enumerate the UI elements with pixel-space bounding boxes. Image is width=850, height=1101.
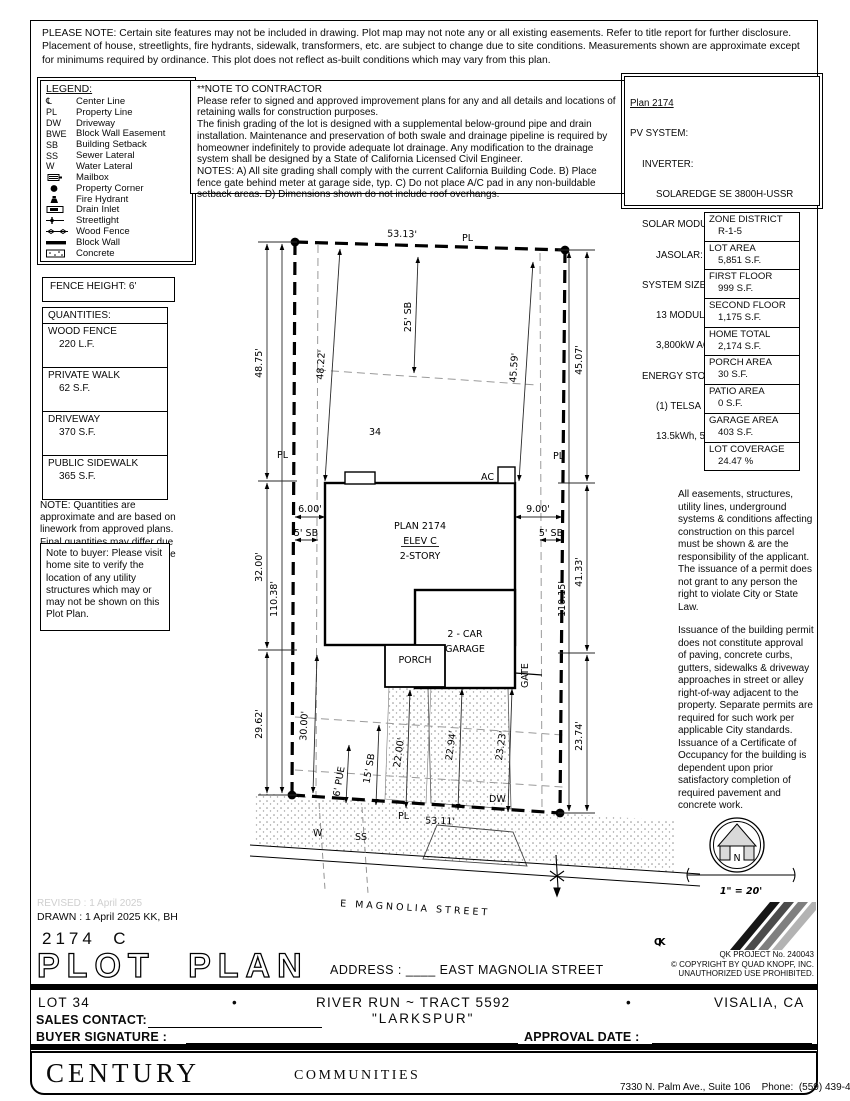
right-offset-label: 9.00': [526, 504, 550, 515]
row-label: LOT AREA: [705, 243, 799, 254]
left-sb-label: 5' SB: [294, 528, 318, 539]
table-row: PRIVATE WALK62 S.F.: [43, 368, 167, 412]
dim-right-3: 23.74': [574, 721, 585, 751]
qk-notice: UNAUTHORIZED USE PROHIBITED.: [640, 969, 814, 979]
plan-code: 2174 C: [42, 929, 130, 949]
qk-project-number: QK PROJECT No. 240043: [640, 950, 814, 960]
legend-label: Property Line: [76, 107, 133, 118]
dw-label: DW: [489, 794, 506, 805]
bullet-separator: •: [232, 995, 238, 1010]
centerline-symbol: ℄: [46, 96, 76, 107]
dim-right-1: 45.07': [574, 345, 585, 375]
table-row: PATIO AREA0 S.F.: [705, 385, 799, 414]
row-value: 403 S.F.: [705, 427, 799, 438]
row-value: 62 S.F.: [43, 383, 167, 394]
dim-left-1: 48.75': [254, 348, 265, 378]
builder-address: 7330 N. Palm Ave., Suite 106 Phone: (559…: [620, 1058, 850, 1101]
table-row: HOME TOTAL2,174 S.F.: [705, 328, 799, 357]
pv-line: INVERTER:: [630, 160, 814, 170]
city-label: VISALIA, CA: [714, 995, 804, 1010]
row-label: GARAGE AREA: [705, 415, 799, 426]
contractor-note-box: **NOTE TO CONTRACTOR Please refer to sig…: [190, 80, 630, 194]
row-value: 30 S.F.: [705, 369, 799, 380]
dim-envelope-left: 48.22': [315, 350, 328, 381]
legend-label: Sewer Lateral: [76, 150, 135, 161]
legend-title: LEGEND:: [46, 83, 192, 95]
legend-label: Driveway: [76, 118, 115, 129]
legend-row: Drain Inlet: [46, 204, 192, 215]
dim-top-length: 53.13': [387, 229, 417, 241]
legend-label: Property Corner: [76, 183, 144, 194]
easement-notes: All easements, structures, utility lines…: [678, 489, 814, 813]
lot-label: LOT 34: [38, 995, 90, 1010]
legend-row: SBBuilding Setback: [46, 139, 192, 150]
legend-row: SSSewer Lateral: [46, 150, 192, 161]
dim-front-2: 6' PUE: [331, 766, 347, 798]
quantities-table: QUANTITIES: WOOD FENCE220 L.F. PRIVATE W…: [42, 307, 168, 500]
dim-left-3: 29.62': [254, 709, 265, 739]
buyer-signature-label: BUYER SIGNATURE :: [36, 1030, 167, 1044]
ac-label: AC: [481, 472, 494, 483]
scale-label: 1" = 20': [720, 886, 762, 897]
qk-copyright: © COPYRIGHT BY QUAD KNOPF, INC.: [640, 960, 814, 970]
legend-label: Water Lateral: [76, 161, 133, 172]
house-plan-label: PLAN 2174: [394, 521, 446, 532]
legend-row: PLProperty Line: [46, 107, 192, 118]
qk-credits: QK PROJECT No. 240043 © COPYRIGHT BY QUA…: [640, 950, 814, 979]
row-label: WOOD FENCE: [43, 326, 167, 337]
porch-label: PORCH: [398, 655, 431, 666]
row-label: SECOND FLOOR: [705, 300, 799, 311]
builder-name: CENTURY: [46, 1058, 200, 1089]
easement-paragraph-2: Issuance of the building permit does not…: [678, 625, 814, 813]
zoning-table: ZONE DISTRICTR-1-5 LOT AREA5,851 S.F. FI…: [704, 212, 800, 471]
legend-row: Mailbox: [46, 172, 192, 183]
right-sb-label: 5' SB: [539, 528, 563, 539]
quantities-title: QUANTITIES:: [43, 308, 167, 324]
pv-system-box: Plan 2174 PV SYSTEM: INVERTER: SOLAREDGE…: [624, 76, 820, 206]
dim-bottom-length: 53.11': [425, 815, 455, 827]
legend-label: Fire Hydrant: [76, 194, 128, 205]
gate-label: GATE: [520, 663, 531, 688]
builder-footer: CENTURY COMMUNITIES 7330 N. Palm Ave., S…: [30, 1051, 818, 1095]
row-label: FIRST FLOOR: [705, 271, 799, 282]
property-line-symbol: PL: [46, 107, 76, 117]
pl-label-left: PL: [277, 450, 289, 461]
legend-label: Drain Inlet: [76, 204, 119, 215]
legend-label: Mailbox: [76, 172, 109, 183]
row-value: 370 S.F.: [43, 427, 167, 438]
streetlight-icon: [46, 216, 76, 225]
pv-line: PV SYSTEM:: [630, 129, 814, 139]
drain-inlet-icon: [46, 205, 76, 214]
legend-label: Block Wall Easement: [76, 128, 165, 139]
north-label: N: [733, 853, 740, 864]
tract-label: RIVER RUN ~ TRACT 5592: [316, 995, 510, 1010]
pl-label-bottom: PL: [398, 811, 410, 822]
table-row: LOT AREA5,851 S.F.: [705, 242, 799, 271]
buyer-note-box: Note to buyer: Please visit home site to…: [40, 543, 170, 631]
legend-row: BWEBlock Wall Easement: [46, 129, 192, 140]
row-label: PRIVATE WALK: [43, 370, 167, 381]
block-wall-easement-symbol: BWE: [46, 129, 76, 139]
address-label: ADDRESS :: [330, 963, 402, 977]
water-lateral-symbol: W: [46, 161, 76, 171]
table-row: SECOND FLOOR1,175 S.F.: [705, 299, 799, 328]
mailbox-icon: [46, 173, 76, 182]
builder-name-suffix: COMMUNITIES: [294, 1068, 420, 1084]
divider-bar-bottom: [30, 1044, 818, 1050]
divider-bar-top: [30, 984, 818, 990]
pv-line: SOLAREDGE SE 3800H-USSR: [630, 190, 814, 200]
dim-left-depth: 110.38': [269, 581, 280, 617]
row-label: PUBLIC SIDEWALK: [43, 458, 167, 469]
ac-pad: [498, 467, 515, 483]
row-value: 24.47 %: [705, 456, 799, 467]
row-value: 999 S.F.: [705, 283, 799, 294]
easement-paragraph-1: All easements, structures, utility lines…: [678, 489, 814, 614]
driveway-symbol: DW: [46, 118, 76, 128]
contractor-note-title: **NOTE TO CONTRACTOR: [197, 84, 623, 96]
table-row: PORCH AREA30 S.F.: [705, 356, 799, 385]
top-disclaimer: PLEASE NOTE: Certain site features may n…: [42, 27, 812, 67]
contractor-note-text: Please refer to signed and approved impr…: [197, 96, 623, 119]
sheet-title: PLOT PLAN: [37, 947, 309, 986]
plan-name-label: "LARKSPUR": [372, 1011, 474, 1026]
property-corner-icon: [46, 184, 76, 193]
fire-hydrant-icon: [46, 195, 76, 204]
rear-envelope-line: [318, 370, 537, 385]
row-value: 1,175 S.F.: [705, 312, 799, 323]
sales-contact-line: [148, 1027, 322, 1028]
rear-setback-label: 25' SB: [403, 302, 414, 332]
left-offset-label: 6.00': [298, 504, 322, 515]
row-value: 0 S.F.: [705, 398, 799, 409]
dim-front-3: 15' SB: [361, 753, 377, 785]
porch-outline: [385, 645, 445, 687]
buyer-signature-line: [186, 1043, 518, 1044]
dim-right-depth: 110.15': [557, 581, 568, 617]
bay-window: [345, 472, 375, 484]
table-row: WOOD FENCE220 L.F.: [43, 324, 167, 368]
row-label: DRIVEWAY: [43, 414, 167, 425]
qk-logo-text: QK: [654, 937, 666, 948]
row-label: HOME TOTAL: [705, 329, 799, 340]
qk-logo: QK: [652, 898, 816, 954]
approval-date-label: APPROVAL DATE :: [524, 1030, 640, 1044]
pl-label-top: PL: [462, 233, 474, 244]
table-row: PUBLIC SIDEWALK365 S.F.: [43, 456, 167, 499]
bullet-separator: •: [626, 995, 632, 1010]
address-value: ____ EAST MAGNOLIA STREET: [406, 963, 604, 977]
fence-height-box: FENCE HEIGHT: 6': [42, 277, 175, 302]
row-label: PATIO AREA: [705, 386, 799, 397]
row-value: R-1-5: [705, 226, 799, 237]
table-row: LOT COVERAGE24.47 %: [705, 443, 799, 471]
table-row: GARAGE AREA403 S.F.: [705, 414, 799, 443]
table-row: FIRST FLOOR999 S.F.: [705, 270, 799, 299]
garage-label-2: GARAGE: [445, 644, 485, 655]
sewer-lateral-symbol: SS: [46, 151, 76, 161]
address-line: ADDRESS : ____ EAST MAGNOLIA STREET: [330, 963, 604, 977]
table-row: DRIVEWAY370 S.F.: [43, 412, 167, 456]
dim-right-2: 41.33': [574, 557, 585, 587]
legend-row: ℄Center Line: [46, 96, 192, 107]
revised-date: REVISED : 1 April 2025: [37, 898, 142, 909]
row-label: ZONE DISTRICT: [705, 214, 799, 225]
sales-contact-label: SALES CONTACT:: [36, 1013, 147, 1027]
house-story-label: 2-STORY: [400, 551, 441, 562]
house-outline: [325, 467, 542, 688]
water-label: W: [313, 828, 323, 839]
legend-row: DWDriveway: [46, 118, 192, 129]
row-value: 2,174 S.F.: [705, 341, 799, 352]
sewer-label: SS: [355, 832, 367, 843]
builder-address-line1: 7330 N. Palm Ave., Suite 106 Phone: (559…: [620, 1082, 850, 1094]
plot-plan-sheet: PLEASE NOTE: Certain site features may n…: [0, 0, 850, 1101]
building-setback-symbol: SB: [46, 140, 76, 150]
north-arrow: N: [710, 818, 764, 872]
table-row: ZONE DISTRICTR-1-5: [705, 213, 799, 242]
contractor-note-text: The finish grading of the lot is designe…: [197, 119, 623, 166]
legend-row: Fire Hydrant: [46, 194, 192, 205]
lot-number: 34: [369, 427, 381, 438]
legend-row: Property Corner: [46, 183, 192, 194]
legend-label: Center Line: [76, 96, 125, 107]
dim-front-1: 30.00': [298, 711, 311, 741]
street-name: E MAGNOLIA STREET: [340, 898, 491, 918]
contractor-note-text: NOTES: A) All site grading shall comply …: [197, 166, 623, 201]
pl-label-right: PL: [553, 451, 565, 462]
legend-label: Building Setback: [76, 139, 147, 150]
row-label: LOT COVERAGE: [705, 444, 799, 455]
legend-row: WWater Lateral: [46, 161, 192, 172]
dim-left-2: 32.00': [254, 552, 265, 582]
drawn-date: DRAWN : 1 April 2025 KK, BH: [37, 911, 178, 923]
pv-plan-label: Plan 2174: [630, 99, 814, 109]
side-setback-line-left: [316, 245, 318, 795]
dim-envelope-right: 45.59': [508, 353, 521, 384]
row-label: PORCH AREA: [705, 357, 799, 368]
garage-label-1: 2 - CAR: [447, 629, 483, 640]
approval-date-line: [652, 1043, 812, 1044]
house-elev-label: ELEV C: [403, 536, 437, 547]
row-value: 220 L.F.: [43, 339, 167, 350]
row-value: 5,851 S.F.: [705, 255, 799, 266]
row-value: 365 S.F.: [43, 471, 167, 482]
